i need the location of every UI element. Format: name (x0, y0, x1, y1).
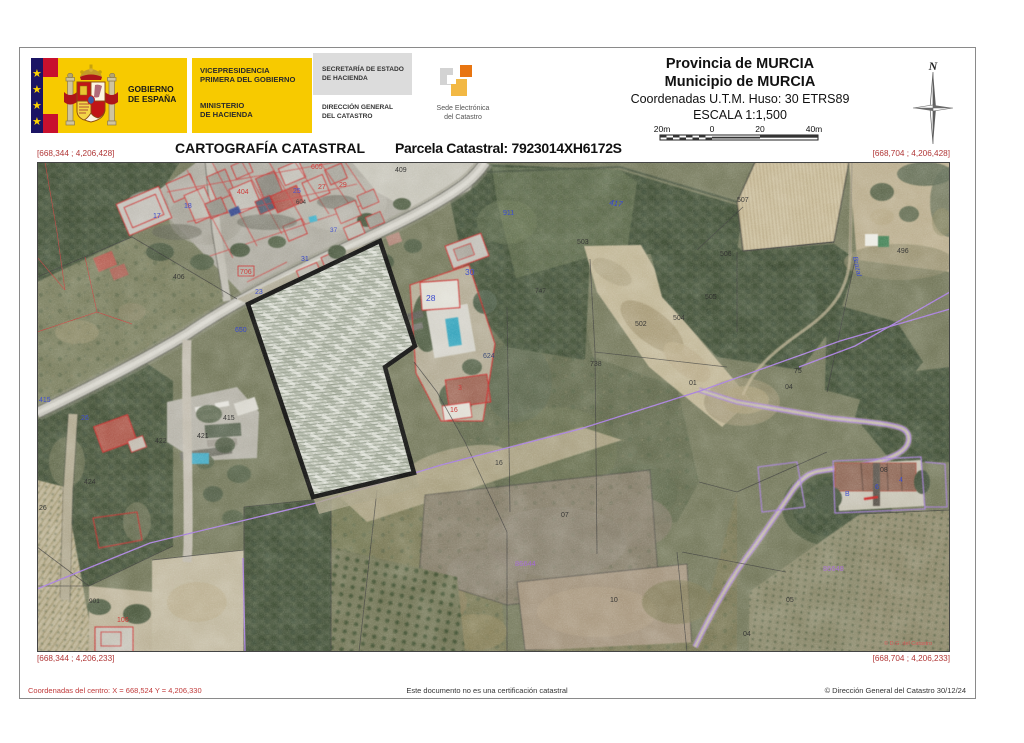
svg-text:20: 20 (755, 124, 765, 134)
svg-text:0: 0 (710, 124, 715, 134)
svg-text:N: N (928, 59, 939, 73)
svg-text:20m: 20m (654, 124, 670, 134)
svg-text:40m: 40m (806, 124, 823, 134)
